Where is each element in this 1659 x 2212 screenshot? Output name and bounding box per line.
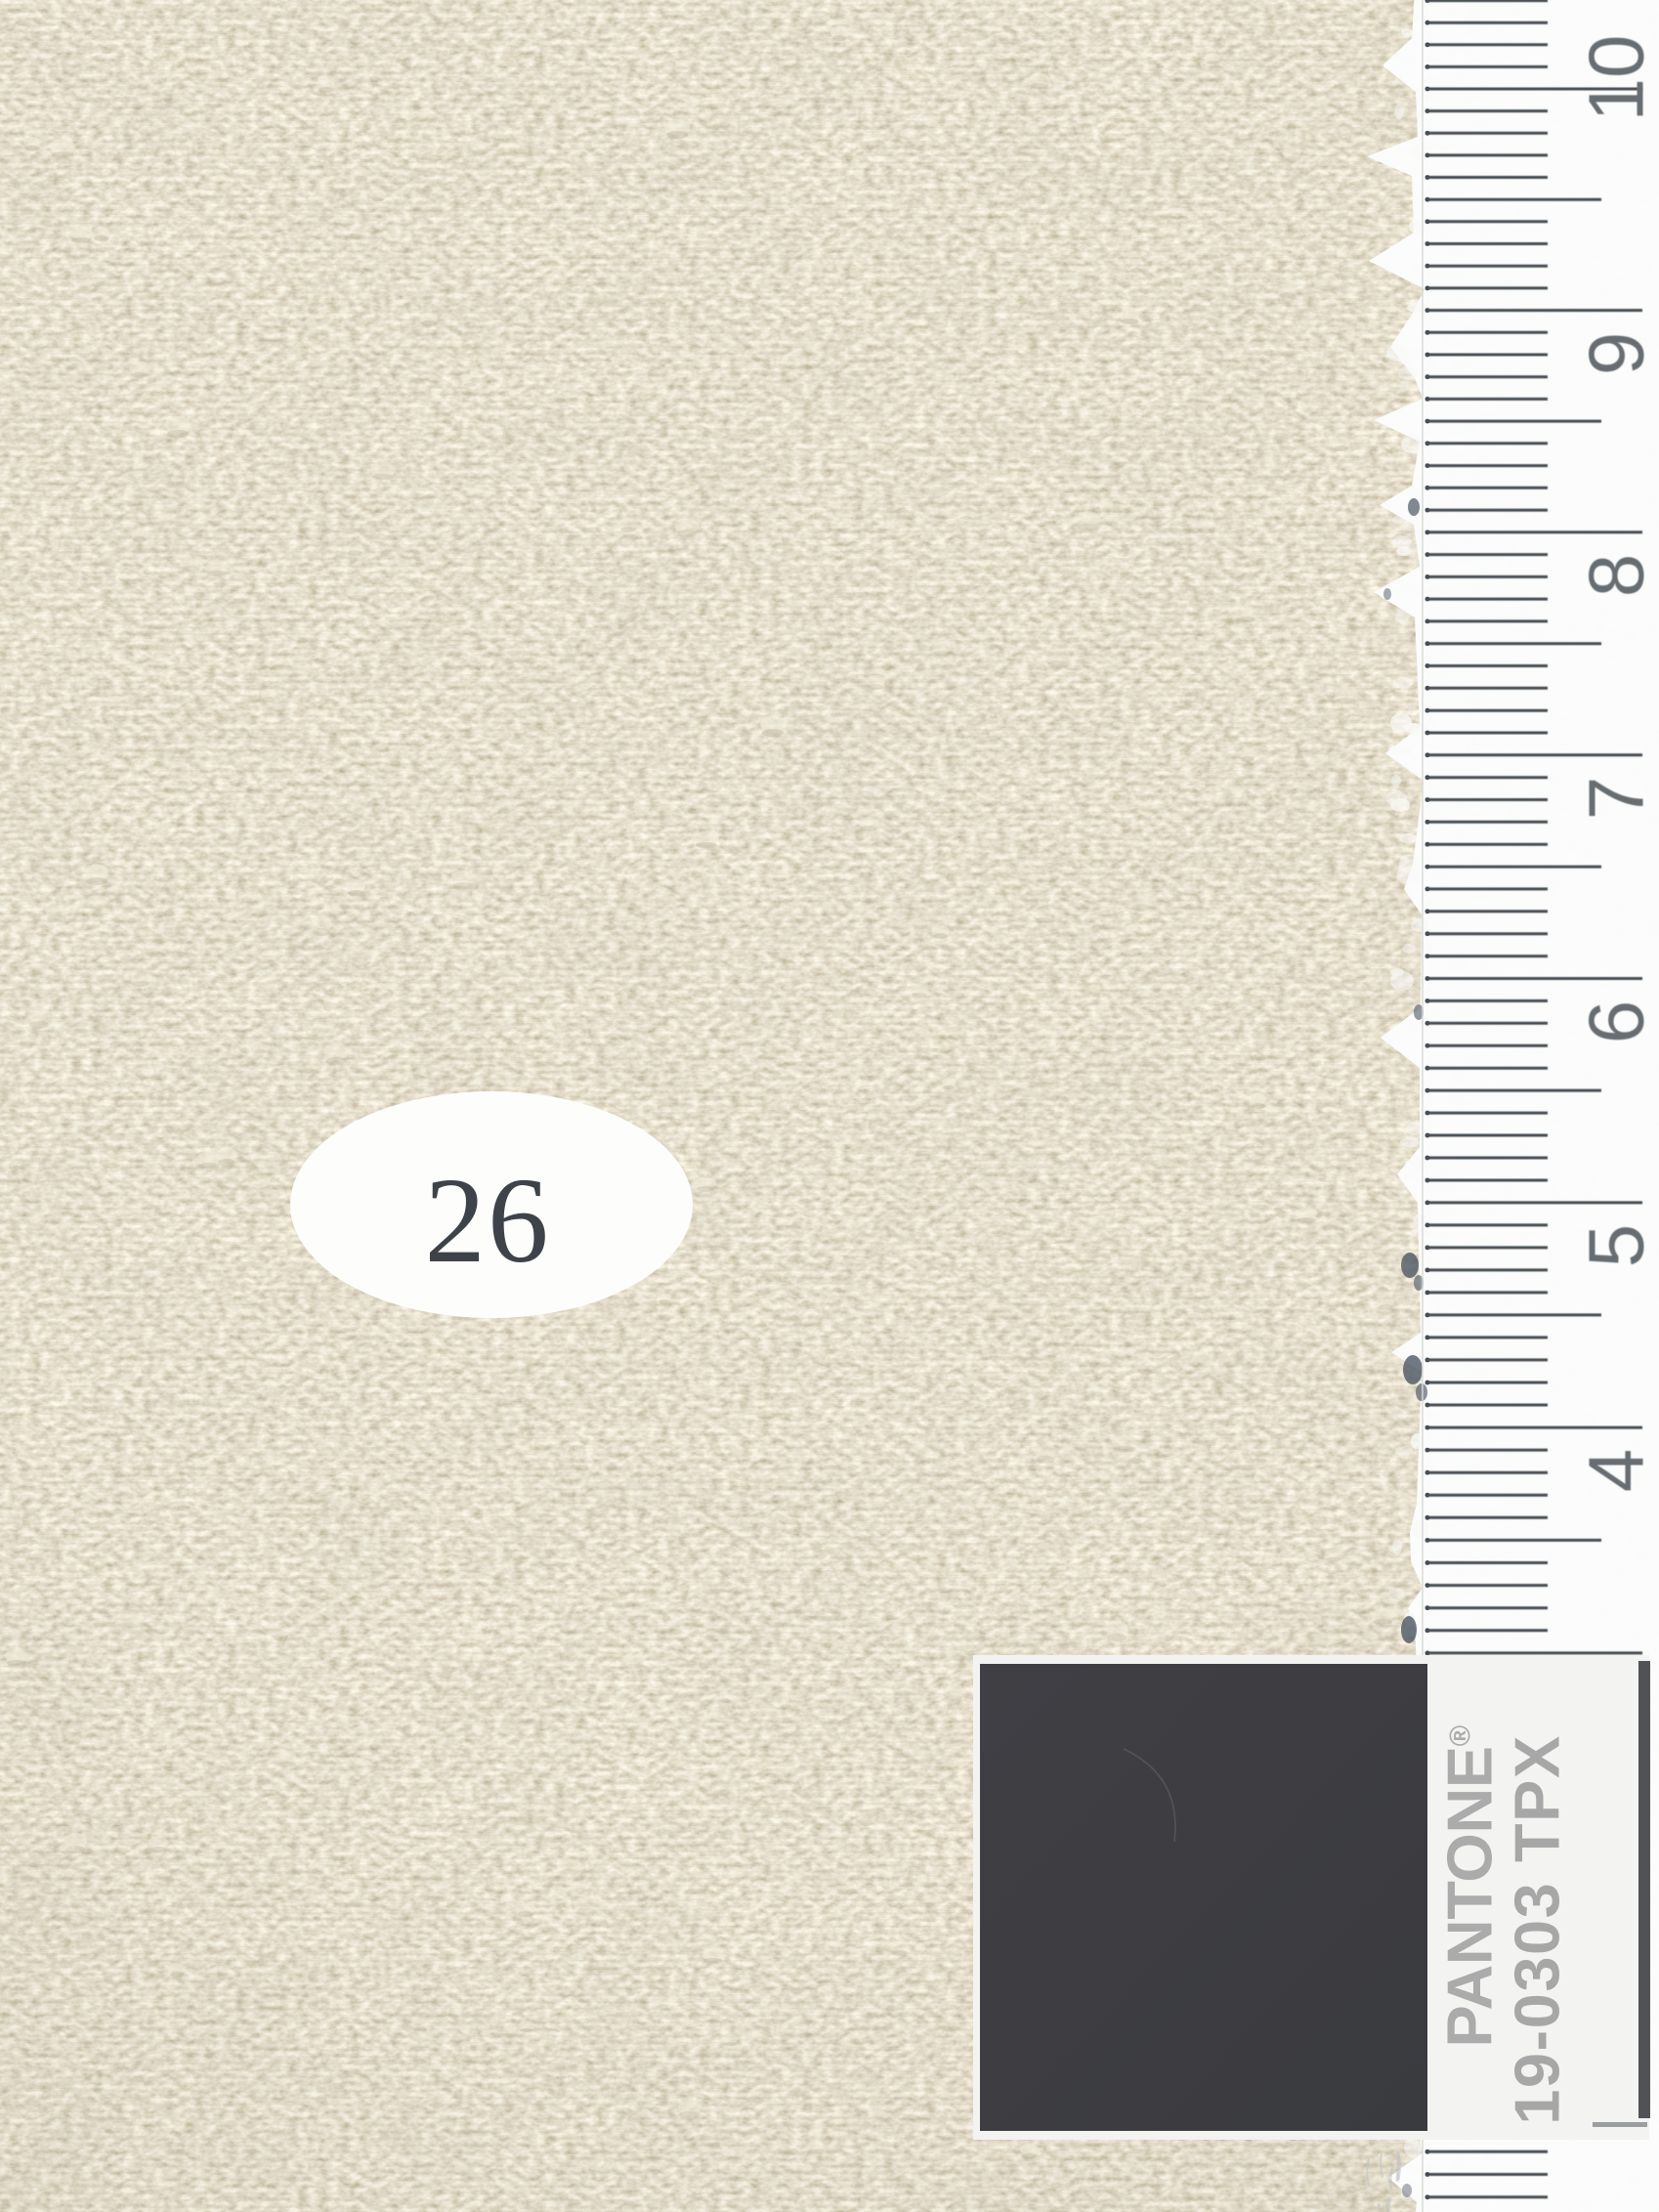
svg-text:10: 10	[1573, 35, 1659, 122]
svg-text:4: 4	[1573, 1449, 1659, 1493]
svg-text:8: 8	[1573, 554, 1659, 598]
svg-text:5: 5	[1573, 1224, 1659, 1268]
svg-text:26: 26	[425, 1154, 551, 1289]
svg-text:6: 6	[1573, 1000, 1659, 1044]
svg-text:7: 7	[1573, 777, 1659, 821]
svg-text:9: 9	[1573, 332, 1659, 376]
